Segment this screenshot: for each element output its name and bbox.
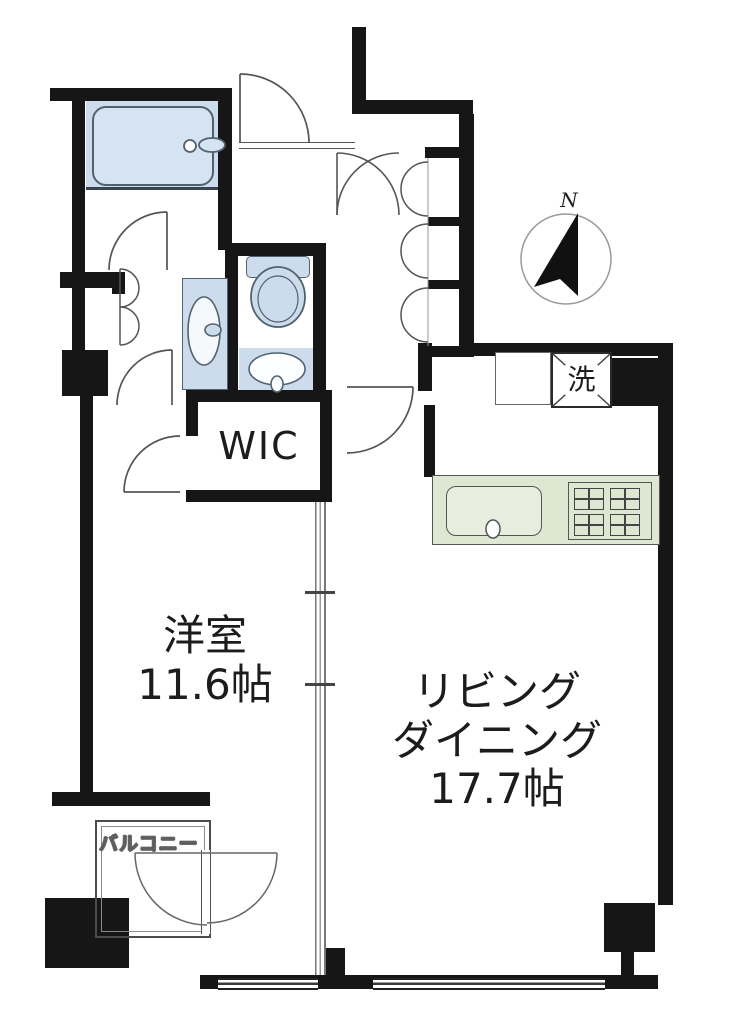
wall [112,272,125,294]
window [218,978,318,990]
accordion-closet-doors [401,158,428,346]
toilet-lower-counter [239,348,315,392]
wic-wall [186,390,332,402]
living-dining-label: リビング ダイニング 17.7帖 [375,668,619,814]
wic-wall [186,390,198,436]
bedroom-label: 洋室 11.6帖 [105,612,305,709]
bathtub [92,106,214,186]
floor-plan-canvas: バルコニー 洗 [0,0,751,1024]
stove-burner [610,514,640,536]
wall [225,243,326,256]
partition-tick [305,683,335,686]
wall [52,792,210,806]
wall [658,343,673,905]
wall [621,950,634,977]
wic-wall [186,490,332,502]
stove-burner [574,488,604,510]
wall [72,285,85,353]
living-size: 17.7帖 [375,765,619,814]
washing-machine-box: 洗 [551,352,612,408]
toilet-tank [246,256,310,278]
wall [60,272,115,288]
wall [72,88,85,300]
washroom-door [117,350,172,405]
pillar [62,350,108,396]
balcony-door-frame [201,850,211,934]
stove-burner [574,514,604,536]
partition-tick [305,591,335,594]
sliding-partition [315,502,326,975]
vanity-unit [182,278,228,390]
refrigerator-slot [495,352,551,405]
wall [80,392,93,794]
living-name-line1: リビング [375,668,619,717]
closet-wall [425,147,465,158]
closet-shelf [428,217,462,226]
bedroom-size: 11.6帖 [105,661,305,710]
laundry-label: 洗 [553,354,610,406]
stove-burner [610,488,640,510]
hall-doors [337,153,399,215]
living-door [347,387,413,453]
compass-north-label: N [552,188,586,212]
window [373,978,605,990]
wall [605,358,658,406]
wic-label: WIC [198,402,320,490]
entrance-door [240,74,309,143]
compass [521,213,611,304]
balcony-label: バルコニー [99,829,199,856]
wall [418,343,432,391]
closet-shelf [428,280,462,289]
wic-wall [320,390,332,502]
bathroom-divider-line [86,187,218,190]
bedroom-door [124,436,180,492]
entrance-threshold [239,142,355,149]
pillar [604,903,655,952]
wall [352,100,473,114]
wall [424,405,435,477]
wall [313,243,326,393]
bathroom-door [109,212,167,270]
bedroom-name: 洋室 [105,612,305,661]
kitchen-sink [446,486,542,536]
living-name-line2: ダイニング [375,717,619,766]
wall [218,88,232,250]
